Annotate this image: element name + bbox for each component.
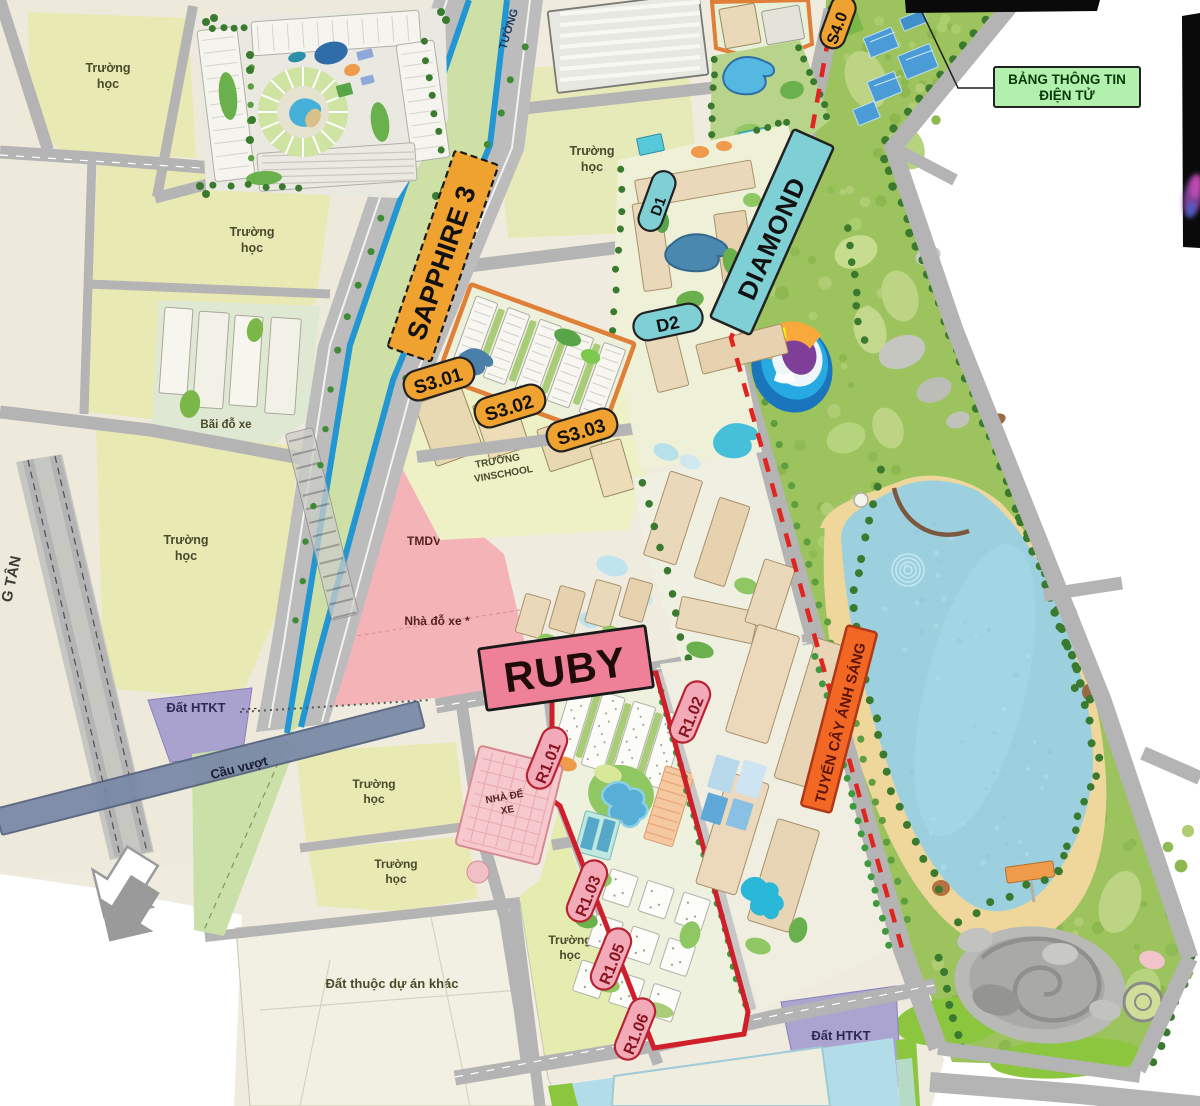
svg-text:học: học (241, 241, 263, 255)
svg-text:Đất thuộc dự án khác: Đất thuộc dự án khác (326, 976, 459, 991)
svg-text:Đất HTKT: Đất HTKT (166, 700, 225, 715)
svg-text:Trường: Trường (85, 61, 130, 75)
svg-text:Trường: Trường (569, 144, 614, 158)
svg-text:Nhà đỗ xe *: Nhà đỗ xe * (404, 613, 470, 628)
svg-text:ĐIỆN TỬ: ĐIỆN TỬ (1039, 88, 1095, 103)
svg-text:BẢNG THÔNG TIN: BẢNG THÔNG TIN (1008, 72, 1126, 87)
svg-text:Đất HTKT: Đất HTKT (811, 1028, 870, 1043)
svg-text:Trường: Trường (163, 533, 208, 547)
svg-text:TMDV: TMDV (407, 534, 441, 548)
svg-text:học: học (385, 872, 407, 886)
svg-text:học: học (559, 948, 581, 962)
svg-text:học: học (175, 549, 197, 563)
svg-text:Trường: Trường (374, 857, 417, 871)
svg-text:Bãi đỗ xe: Bãi đỗ xe (200, 418, 251, 431)
svg-text:Trường: Trường (352, 777, 395, 791)
svg-text:học: học (363, 792, 385, 806)
svg-text:học: học (581, 160, 603, 174)
svg-text:XE: XE (500, 804, 515, 817)
svg-text:học: học (97, 77, 119, 91)
svg-text:Trường: Trường (229, 225, 274, 239)
svg-text:Trường: Trường (548, 933, 591, 947)
